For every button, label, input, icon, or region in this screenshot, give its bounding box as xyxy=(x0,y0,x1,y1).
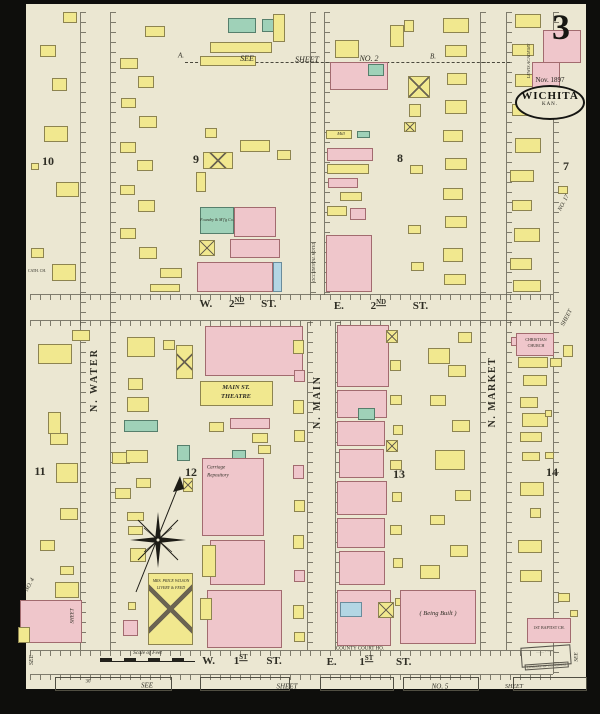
building-footprint xyxy=(520,432,542,442)
building-footprint xyxy=(196,172,206,192)
label-christian-church-2: CHURCH xyxy=(528,344,545,348)
building-footprint xyxy=(420,565,440,579)
building-footprint xyxy=(205,128,217,138)
building-footprint xyxy=(393,558,403,568)
label-mill: Mill xyxy=(337,132,345,137)
ref-sheet-bottom: SHEET xyxy=(277,684,298,691)
building-footprint xyxy=(205,326,303,376)
building-footprint xyxy=(252,433,268,443)
street-label-e-1st: E. 1ST ST. xyxy=(327,656,412,668)
street-lot-line xyxy=(30,294,553,300)
building-footprint xyxy=(510,170,534,182)
building-footprint xyxy=(340,192,362,201)
building-footprint xyxy=(326,235,372,292)
building-footprint xyxy=(145,26,165,37)
building-footprint xyxy=(60,508,78,520)
building-footprint xyxy=(210,540,265,585)
building-footprint xyxy=(121,98,136,108)
building-footprint xyxy=(444,274,466,285)
building-footprint xyxy=(128,378,143,390)
building-footprint xyxy=(124,420,158,432)
building-footprint xyxy=(390,25,404,47)
building-footprint xyxy=(518,540,542,553)
building-footprint xyxy=(452,420,470,432)
label-being-built: ( Being Built ) xyxy=(419,611,456,618)
building-footprint xyxy=(404,20,414,32)
building-footprint xyxy=(518,357,548,368)
ref-letter-a: A. xyxy=(178,53,184,60)
building-footprint xyxy=(527,618,571,643)
building-footprint xyxy=(558,593,570,602)
ref-sheet-bottom-2: SHEET xyxy=(505,684,523,690)
building-footprint xyxy=(44,126,68,142)
block-number-12: 12 xyxy=(185,466,197,478)
building-footprint xyxy=(515,138,541,153)
ref-letter-b: B. xyxy=(430,54,436,61)
building-footprint xyxy=(514,228,540,242)
building-footprint xyxy=(339,551,385,585)
building-footprint xyxy=(160,268,182,278)
label-livery-2: LIVERY & FEED xyxy=(157,586,185,590)
building-footprint xyxy=(123,620,138,636)
building-footprint xyxy=(510,258,532,270)
building-footprint xyxy=(327,206,347,216)
building-footprint xyxy=(209,422,224,432)
building-footprint xyxy=(202,545,216,577)
building-footprint xyxy=(40,45,56,57)
building-footprint xyxy=(523,375,547,386)
building-footprint xyxy=(445,100,467,114)
building-footprint xyxy=(520,482,544,496)
label-livery-1: MRS. PRICE WILSON xyxy=(153,579,190,583)
building-footprint xyxy=(337,481,387,515)
sanborn-map-sheet: 3 Nov. 1897 WICHITA KAN. Scale of Feet —… xyxy=(0,0,600,714)
scale-label: Scale of Feet xyxy=(100,650,195,656)
building-footprint xyxy=(120,142,136,153)
building-footprint xyxy=(127,397,149,412)
building-footprint xyxy=(408,225,421,234)
ref-sheet-top: SHEET xyxy=(295,56,319,64)
building-footprint xyxy=(448,365,466,377)
building-footprint xyxy=(126,450,148,463)
building-footprint xyxy=(339,449,384,478)
ref-sheet-left: SHEET xyxy=(71,609,76,624)
building-footprint xyxy=(293,400,304,414)
building-footprint xyxy=(337,590,391,646)
building-footprint xyxy=(31,163,39,170)
building-footprint xyxy=(197,262,273,292)
building-footprint xyxy=(52,264,76,281)
street-label-run: ST. xyxy=(244,298,276,310)
building-footprint xyxy=(378,602,394,618)
building-footprint xyxy=(357,131,370,138)
block-number-13: 13 xyxy=(393,468,405,480)
building-footprint xyxy=(31,248,44,258)
building-footprint xyxy=(63,12,77,23)
street-label-run: ST. xyxy=(373,656,411,668)
street-label-n-main: N. MAIN xyxy=(313,375,323,429)
building-footprint xyxy=(358,408,375,420)
building-footprint xyxy=(56,463,78,483)
building-footprint xyxy=(163,340,175,350)
building-footprint xyxy=(368,64,384,76)
ref-no2-top: NO. 2 xyxy=(359,55,378,63)
building-footprint xyxy=(294,570,305,582)
building-footprint xyxy=(138,76,154,88)
building-footprint xyxy=(328,178,358,188)
building-footprint xyxy=(18,627,30,643)
building-footprint xyxy=(445,45,467,57)
building-footprint xyxy=(150,284,180,292)
building-footprint xyxy=(127,337,155,357)
building-footprint xyxy=(515,14,541,28)
building-footprint xyxy=(563,345,573,357)
block-number-10: 10 xyxy=(42,155,54,167)
building-footprint xyxy=(545,410,552,417)
building-footprint xyxy=(430,515,445,525)
street-label-run: E. 2 xyxy=(334,300,376,312)
building-footprint xyxy=(207,590,282,648)
building-footprint xyxy=(404,122,416,132)
ref-30: 30 xyxy=(86,680,91,685)
building-footprint xyxy=(293,535,304,549)
building-footprint xyxy=(443,248,463,262)
building-footprint xyxy=(430,395,446,406)
building-footprint xyxy=(558,186,568,194)
street-label-run: ST. xyxy=(386,300,428,312)
building-footprint xyxy=(520,570,542,582)
street-label-w-1st: W. 1ST ST. xyxy=(202,655,281,667)
building-footprint xyxy=(120,228,136,239)
label-foundry: Foundry & M'f'g Co. xyxy=(200,218,234,222)
building-footprint xyxy=(210,42,272,53)
street-label-w-2nd: W. 2ND ST. xyxy=(200,298,277,310)
badge-state: KAN. xyxy=(517,102,583,107)
building-footprint xyxy=(513,280,541,292)
street-label-run: W. 2 xyxy=(200,298,235,310)
building-footprint xyxy=(337,325,389,387)
label-lewis-academy: LEWIS ACADEMY xyxy=(527,44,532,79)
sheet-ref-box xyxy=(55,677,172,691)
building-footprint xyxy=(337,518,385,548)
building-footprint xyxy=(443,130,463,142)
building-footprint xyxy=(445,158,467,170)
street-label-n-market: N. MARKET xyxy=(488,357,498,428)
block-number-8: 8 xyxy=(397,152,403,164)
street-label-run: ST xyxy=(365,655,373,662)
building-footprint xyxy=(443,18,469,33)
label-first-baptist: 1ST BAPTIST CH. xyxy=(533,626,564,630)
building-footprint xyxy=(327,164,369,174)
block-number-7: 7 xyxy=(563,160,569,172)
building-footprint xyxy=(120,58,138,69)
building-footprint xyxy=(550,358,562,367)
building-footprint xyxy=(445,216,467,228)
building-footprint xyxy=(545,452,554,459)
badge-city: WICHITA xyxy=(517,90,583,102)
building-footprint xyxy=(38,344,72,364)
building-footprint xyxy=(200,598,212,620)
building-footprint xyxy=(408,76,430,98)
block-number-9: 9 xyxy=(193,153,199,165)
building-footprint xyxy=(293,605,304,619)
building-footprint xyxy=(230,239,280,258)
building-footprint xyxy=(390,525,402,535)
badge-date: Nov. 1897 xyxy=(511,76,589,84)
building-footprint xyxy=(55,582,79,598)
building-footprint xyxy=(139,116,157,128)
scale-bar xyxy=(100,658,195,662)
building-footprint xyxy=(411,262,424,271)
label-county-court: COUNTY COURT HO. xyxy=(336,647,384,652)
building-footprint xyxy=(340,602,362,617)
ref-see-top: SEE xyxy=(240,55,254,63)
building-footprint xyxy=(240,140,270,152)
building-footprint xyxy=(428,348,450,364)
building-footprint xyxy=(294,500,305,512)
street-label-run: ND xyxy=(235,297,245,304)
building-footprint xyxy=(293,340,304,354)
sheet-number: 3 xyxy=(552,6,570,48)
building-footprint xyxy=(176,345,193,379)
building-footprint xyxy=(293,465,304,479)
building-footprint xyxy=(50,433,68,445)
street-lot-line xyxy=(307,322,313,650)
building-footprint xyxy=(455,490,471,501)
building-footprint xyxy=(273,14,285,42)
street-label-run: E. 1 xyxy=(327,656,365,668)
street-lot-line xyxy=(480,12,486,650)
building-footprint xyxy=(234,207,276,237)
street-label-n-water: N. WATER xyxy=(90,348,100,412)
block-number-14: 14 xyxy=(546,466,558,478)
street-label-run: ST. xyxy=(248,655,282,667)
building-footprint xyxy=(570,610,578,617)
block-number-11: 11 xyxy=(34,465,45,477)
building-footprint xyxy=(390,395,402,405)
label-carriage-1: Carriage xyxy=(207,466,225,471)
building-footprint xyxy=(392,492,402,502)
street-label-run: W. 1 xyxy=(202,655,239,667)
building-footprint xyxy=(409,104,421,117)
building-footprint xyxy=(177,445,190,461)
building-footprint xyxy=(447,73,467,85)
building-footprint xyxy=(60,566,74,575)
building-footprint xyxy=(443,188,463,200)
label-occidental-hotel: OCCIDENTAL HOTEL xyxy=(312,242,316,282)
building-footprint xyxy=(203,152,233,169)
building-footprint xyxy=(458,332,472,343)
building-footprint xyxy=(335,40,359,58)
building-footprint xyxy=(72,330,90,341)
label-main-st-theatre-1: MAIN ST. xyxy=(222,385,250,392)
building-footprint xyxy=(410,165,423,174)
building-footprint xyxy=(522,452,540,461)
street-lot-line xyxy=(110,12,116,650)
building-footprint xyxy=(390,360,401,371)
building-footprint xyxy=(228,18,256,33)
building-footprint xyxy=(435,450,465,470)
building-footprint xyxy=(48,412,61,434)
building-footprint xyxy=(138,200,155,212)
building-footprint xyxy=(327,148,373,161)
building-footprint xyxy=(450,545,468,557)
label-christian-church-1: CHRISTIAN xyxy=(525,338,546,342)
building-footprint xyxy=(277,150,291,160)
stamp-line: LIBRARY OF CONGRESS xyxy=(525,661,569,670)
ref-see-bottom: SEE xyxy=(141,683,153,690)
label-cath-ch: CATH. CH. xyxy=(28,270,46,274)
badge-oval: WICHITA KAN. xyxy=(515,85,585,120)
building-footprint xyxy=(52,78,67,91)
building-footprint xyxy=(512,200,532,211)
building-footprint xyxy=(294,430,305,442)
building-footprint xyxy=(393,425,403,435)
building-footprint xyxy=(294,632,305,642)
building-footprint xyxy=(386,330,398,343)
map-scale: Scale of Feet xyxy=(100,650,195,662)
ref-no5-bottom: NO. 5 xyxy=(432,684,449,691)
building-footprint xyxy=(230,418,270,429)
building-footprint xyxy=(273,262,282,292)
ref-see-left: SEE xyxy=(29,655,35,665)
building-footprint xyxy=(137,160,153,171)
label-carriage-2: Repository xyxy=(207,474,229,479)
building-footprint xyxy=(120,185,135,195)
stamp-line: —— · —— xyxy=(522,647,570,655)
ref-see-right: SEE xyxy=(574,652,580,661)
building-footprint xyxy=(294,370,305,382)
building-footprint xyxy=(56,182,79,197)
building-footprint xyxy=(139,247,157,259)
building-footprint xyxy=(337,421,385,446)
building-footprint xyxy=(199,240,215,256)
sheet-ref-box xyxy=(320,677,394,691)
building-footprint xyxy=(258,445,271,454)
building-footprint xyxy=(386,440,398,452)
building-footprint xyxy=(128,602,136,610)
sheet-ref-box xyxy=(513,677,587,691)
label-main-st-theatre-2: THEATRE xyxy=(221,394,251,401)
building-footprint xyxy=(520,397,538,408)
street-label-run: ND xyxy=(376,299,386,306)
map-title-badge: Nov. 1897 WICHITA KAN. xyxy=(511,76,589,120)
building-footprint xyxy=(40,540,55,551)
building-footprint xyxy=(530,508,541,518)
building-footprint xyxy=(350,208,366,220)
library-stamp: —— · —— LIBRARY OF CONGRESS xyxy=(520,644,571,667)
street-label-e-2nd: E. 2ND ST. xyxy=(334,300,428,312)
